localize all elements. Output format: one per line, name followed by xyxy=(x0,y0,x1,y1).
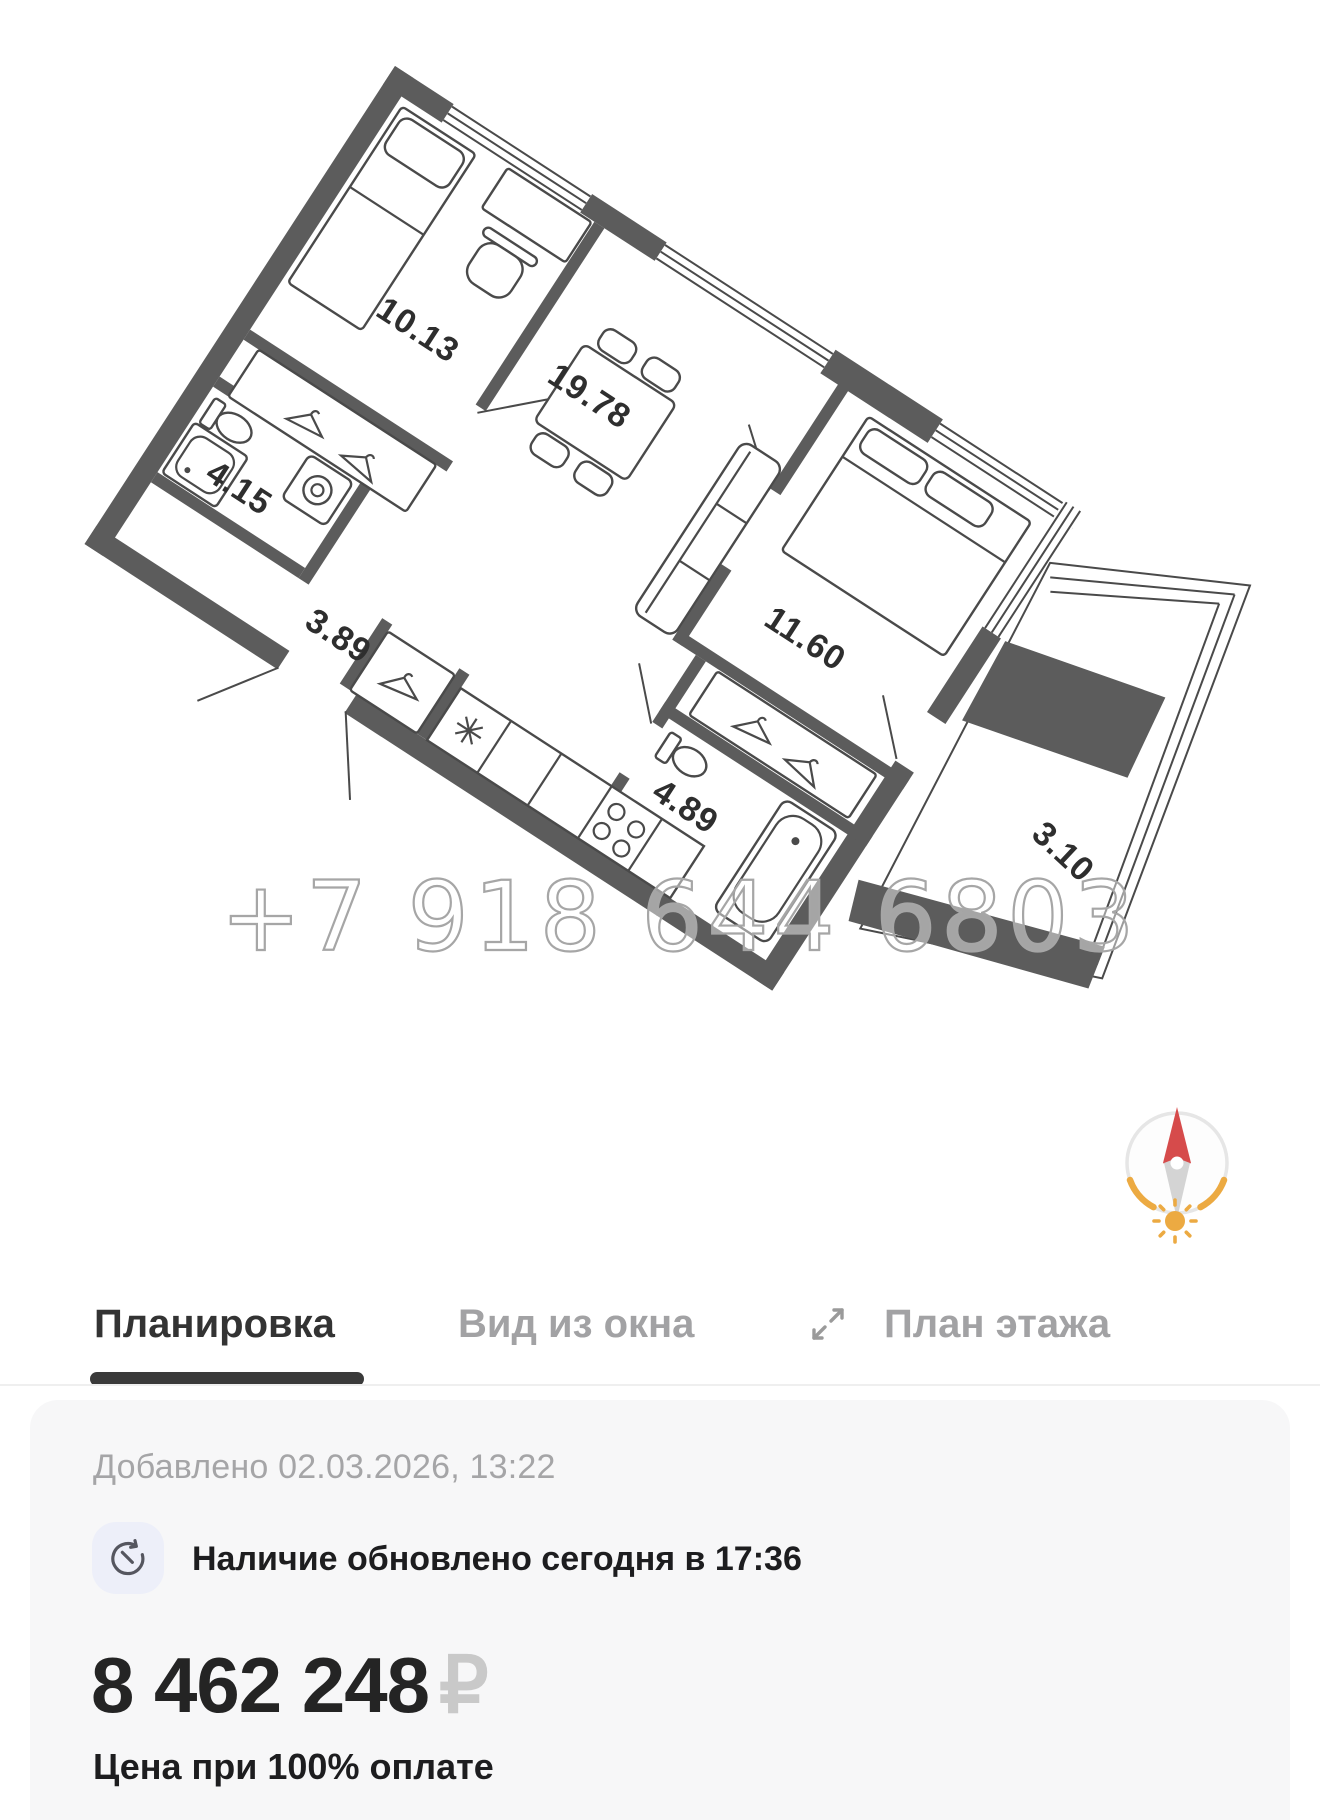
currency-symbol: ₽ xyxy=(439,1641,488,1729)
apartment-drawing: 10.13 19.78 4.15 3.89 11.60 4.89 3.10 xyxy=(46,41,1320,1197)
compass-icon xyxy=(1127,1107,1227,1242)
price: 8 462 248₽ xyxy=(91,1640,488,1731)
added-date-text: Добавлено 02.03.2026, 13:22 xyxy=(93,1448,556,1487)
availability-text: Наличие обновлено сегодня в 17:36 xyxy=(192,1540,802,1579)
label-bedroom: 11.60 xyxy=(758,599,853,679)
watermark-phone: +7 918 644 6803 xyxy=(221,861,1140,973)
tab-floor-plan[interactable]: План этажа xyxy=(884,1302,1110,1346)
tab-window-view[interactable]: Вид из окна xyxy=(458,1302,694,1346)
tab-bar-divider xyxy=(0,1384,1320,1386)
floor-plan-image[interactable]: 10.13 19.78 4.15 3.89 11.60 4.89 3.10 +7… xyxy=(0,0,1320,1262)
listing-info-card: Добавлено 02.03.2026, 13:22 Наличие обно… xyxy=(30,1400,1290,1820)
label-kids-room: 10.13 xyxy=(370,290,466,371)
tab-layout[interactable]: Планировка xyxy=(94,1302,335,1346)
price-note: Цена при 100% оплате xyxy=(93,1746,494,1788)
price-value: 8 462 248 xyxy=(91,1641,429,1729)
availability-clock-icon xyxy=(92,1522,164,1594)
sun-icon xyxy=(1154,1200,1196,1242)
expand-icon[interactable] xyxy=(804,1300,852,1348)
